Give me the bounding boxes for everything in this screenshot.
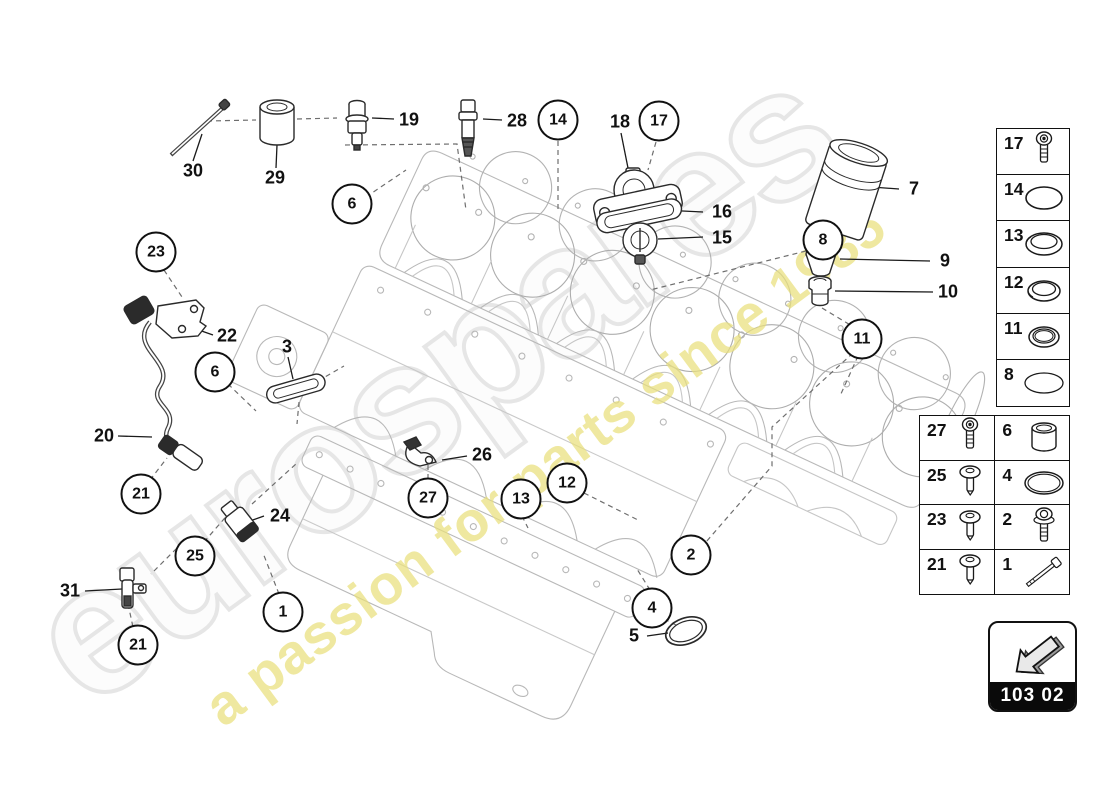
legend-cell-6[interactable]: 6 <box>994 415 1070 461</box>
callout-24[interactable]: 24 <box>270 506 290 527</box>
legend-cell-1[interactable]: 1 <box>994 549 1070 595</box>
seal-ring-icon <box>1021 222 1067 266</box>
callout-27[interactable]: 27 <box>408 478 449 519</box>
pan-screw-icon <box>947 550 993 594</box>
legend-cell-25[interactable]: 25 <box>919 460 996 506</box>
callout-28[interactable]: 28 <box>507 111 527 132</box>
callout-5[interactable]: 5 <box>629 626 639 647</box>
legend-cell-13[interactable]: 13 <box>996 220 1070 268</box>
callout-11[interactable]: 11 <box>842 319 883 360</box>
legend-part-number: 21 <box>927 554 946 575</box>
seal-ring-icon <box>1021 269 1067 313</box>
callout-21[interactable]: 21 <box>118 625 159 666</box>
callout-12[interactable]: 12 <box>547 463 588 504</box>
callout-8[interactable]: 8 <box>803 220 844 261</box>
parts-legend-single-column: 17 14 13 12 11 8 <box>996 128 1070 407</box>
pan-screw-icon <box>947 461 993 505</box>
callout-3[interactable]: 3 <box>282 337 292 358</box>
callout-14[interactable]: 14 <box>538 100 579 141</box>
legend-part-number: 25 <box>927 465 946 486</box>
legend-part-number: 8 <box>1004 364 1014 385</box>
legend-part-number: 6 <box>1002 420 1012 441</box>
pan-screw-icon <box>947 506 993 550</box>
legend-part-number: 4 <box>1002 465 1012 486</box>
o-ring-icon <box>1021 176 1067 220</box>
legend-cell-17[interactable]: 17 <box>996 128 1070 176</box>
callout-15[interactable]: 15 <box>712 228 732 249</box>
callout-10[interactable]: 10 <box>938 282 958 303</box>
sleeve-bushing-icon <box>1021 416 1067 460</box>
parts-diagram-page: eurospares <box>0 0 1100 800</box>
torx-bolt-icon <box>947 416 993 460</box>
callout-6[interactable]: 6 <box>332 184 373 225</box>
page-code-box[interactable]: 103 02 <box>988 621 1077 712</box>
callout-13[interactable]: 13 <box>501 479 542 520</box>
callout-25[interactable]: 25 <box>175 536 216 577</box>
callout-18[interactable]: 18 <box>610 112 630 133</box>
legend-cell-11[interactable]: 11 <box>996 313 1070 361</box>
parts-legend-two-column: 27 6 25 4 23 2 <box>919 415 1070 595</box>
callout-23[interactable]: 23 <box>136 232 177 273</box>
torx-bolt-icon <box>1021 130 1067 174</box>
callout-17[interactable]: 17 <box>639 101 680 142</box>
legend-part-number: 1 <box>1002 554 1012 575</box>
back-arrow-icon <box>997 628 1069 678</box>
callout-1[interactable]: 1 <box>263 592 304 633</box>
legend-part-number: 27 <box>927 420 946 441</box>
callout-30[interactable]: 30 <box>183 161 203 182</box>
page-code-label: 103 02 <box>990 682 1075 710</box>
legend-cell-23[interactable]: 23 <box>919 504 996 550</box>
legend-cell-12[interactable]: 12 <box>996 267 1070 315</box>
callout-layer: 3029192814181761615789101123223620212426… <box>0 0 1100 800</box>
callout-26[interactable]: 26 <box>472 445 492 466</box>
flange-bolt-icon <box>1021 506 1067 550</box>
seal-ring-icon <box>1021 315 1067 359</box>
callout-4[interactable]: 4 <box>632 588 673 629</box>
callout-7[interactable]: 7 <box>909 179 919 200</box>
legend-cell-8[interactable]: 8 <box>996 359 1070 407</box>
legend-cell-21[interactable]: 21 <box>919 549 996 595</box>
callout-2[interactable]: 2 <box>671 535 712 576</box>
callout-16[interactable]: 16 <box>712 202 732 223</box>
callout-31[interactable]: 31 <box>60 581 80 602</box>
callout-6[interactable]: 6 <box>195 352 236 393</box>
o-ring-icon <box>1021 461 1067 505</box>
callout-20[interactable]: 20 <box>94 426 114 447</box>
callout-29[interactable]: 29 <box>265 168 285 189</box>
legend-cell-2[interactable]: 2 <box>994 504 1070 550</box>
callout-21[interactable]: 21 <box>121 474 162 515</box>
legend-cell-27[interactable]: 27 <box>919 415 996 461</box>
callout-9[interactable]: 9 <box>940 251 950 272</box>
legend-part-number: 23 <box>927 509 946 530</box>
callout-19[interactable]: 19 <box>399 110 419 131</box>
legend-part-number: 2 <box>1002 509 1012 530</box>
o-ring-icon <box>1021 361 1067 405</box>
callout-22[interactable]: 22 <box>217 326 237 347</box>
legend-part-number: 11 <box>1004 318 1023 339</box>
legend-cell-14[interactable]: 14 <box>996 174 1070 222</box>
legend-cell-4[interactable]: 4 <box>994 460 1070 506</box>
long-bolt-icon <box>1021 550 1067 594</box>
